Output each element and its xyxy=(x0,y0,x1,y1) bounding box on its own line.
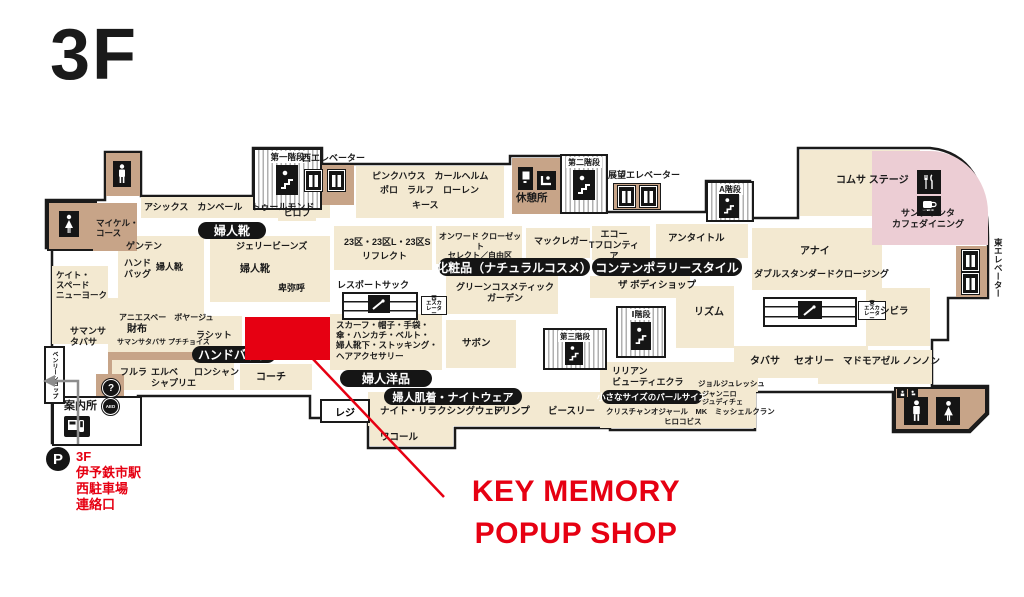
label-sybilla: シビラ xyxy=(880,306,909,317)
label-comme-ca-stage: コムサ ステージ xyxy=(836,175,909,187)
label-green-cosmetic: グリーンコスメティック ガーデン xyxy=(450,282,560,304)
label-anayi: アナイ xyxy=(800,246,830,258)
vending-machine-icon xyxy=(518,167,533,190)
baby-care-icon xyxy=(897,388,907,398)
block-anayi xyxy=(752,228,882,290)
west-escalator-sign: 西 エスカレーター xyxy=(425,295,443,316)
label-mcgregor: マックレガー xyxy=(534,236,588,247)
label-west-elevator: 西エレベーター xyxy=(302,153,365,164)
label-gianni: ジャンニロ ジュディチェ xyxy=(702,391,743,408)
staircase-2-box: 第二階段 xyxy=(560,154,608,214)
elevator-icon xyxy=(305,170,322,191)
label-coach: コーチ xyxy=(256,372,286,384)
east-escalator-sign: 東 エスカレーター xyxy=(862,300,882,321)
label-lilian: リリアン ビューティエクラ xyxy=(612,366,683,388)
staircase-3-label: 第三階段 xyxy=(558,331,592,342)
label-georges-rech: ジョルジュレッシュ xyxy=(698,379,765,388)
public-phone-icon xyxy=(64,416,90,437)
label-mademoiselle: マドモアゼル ノンノン xyxy=(843,356,940,367)
label-michael-kors: マイケル・ コース xyxy=(96,218,139,238)
label-women-shoes-small: 婦人靴 xyxy=(156,262,183,273)
label-observation-elevator: 展望エレベーター xyxy=(608,170,680,181)
mens-restroom-icon xyxy=(113,161,131,187)
label-lesportsac: レスポートサック xyxy=(337,280,409,291)
label-kate-spade: ケイト・ スペード ニューヨーク xyxy=(56,270,107,301)
label-tabatha: タバサ xyxy=(750,356,780,368)
label-ecco: エコー Tフロンティア xyxy=(586,229,642,261)
badge-women-apparel: 婦人洋品 xyxy=(340,370,432,387)
annotation-line2: POPUP SHOP xyxy=(436,516,716,552)
accessible-restroom-icon xyxy=(908,388,918,398)
label-body-shop: ザ ボディショップ xyxy=(618,280,696,291)
block-23ku xyxy=(334,226,432,270)
label-triumph: トリンプ xyxy=(492,406,530,417)
label-rest-area: 休憩所 xyxy=(516,192,548,205)
label-theory: セオリー xyxy=(794,356,834,368)
label-himiko: 卑弥呼 xyxy=(278,283,305,294)
label-women-shoes-center: 婦人靴 xyxy=(240,264,270,276)
label-double-standard: ダブルスタンダードクロージング xyxy=(754,269,889,280)
staircase-3-box: 第三階段 xyxy=(543,328,607,370)
west-escalator-strip xyxy=(342,292,418,320)
label-keith: キース xyxy=(412,200,439,211)
parking-note-line1: 3F xyxy=(76,449,91,465)
label-pink-house: ピンクハウス カールヘルム xyxy=(372,171,488,182)
label-untitled: アンタイトル xyxy=(668,233,725,244)
label-longchamp: ロンシャン xyxy=(194,367,239,378)
label-christian-aujard: クリスチャンオジャール MK ミッシェルクラン xyxy=(606,407,775,416)
label-furla: フルラ xyxy=(120,367,147,378)
label-information: 案内所 xyxy=(64,400,97,413)
label-sabon: サボン xyxy=(462,338,491,349)
label-jelly-beans: ジェリービーンズ xyxy=(236,241,307,252)
label-genten: ゲンテン xyxy=(126,241,162,252)
badge-lingerie: 婦人肌着・ナイトウェア xyxy=(384,388,522,405)
elevator-icon xyxy=(962,250,979,271)
label-23ku: 23区・23区L・23区S xyxy=(344,237,431,248)
restaurant-icon xyxy=(917,170,941,194)
elevator-icon xyxy=(962,273,979,294)
elevator-icon xyxy=(618,186,635,207)
badge-pearl-size: 小さなサイズのパールサイズ xyxy=(602,390,702,404)
elevator-icon xyxy=(328,170,345,191)
womens-restroom-icon xyxy=(59,211,79,237)
label-wallets: 財布 xyxy=(127,324,147,336)
west-escalator-signbox: 西 エスカレーター xyxy=(421,296,447,315)
parking-icon: P xyxy=(46,447,70,471)
benly-shop-box: ベンリーショップ xyxy=(44,346,65,404)
label-reflect: リフレクト xyxy=(362,251,407,262)
label-rhythm: リズム xyxy=(694,307,724,319)
label-handbag-small: ハンド バッグ xyxy=(124,258,151,280)
page-title: 3F xyxy=(50,12,138,98)
label-b-three: ビースリー xyxy=(548,406,595,417)
label-agnes-voyage: アニエスベー ボヤージュ xyxy=(119,313,214,323)
label-accessories: スカーフ・帽子・手袋・ 傘・ハンカチ・ベルト・ 婦人靴下・ストッキング・ ヘアア… xyxy=(336,320,438,361)
label-santa-cafe: サンタサンタ カフェダイニング xyxy=(872,208,984,230)
staircase-i-label: Ⅰ階段 xyxy=(630,309,653,320)
stairs-icon xyxy=(573,170,595,200)
label-herve-chapelier: エルベ シャプリエ xyxy=(151,367,196,389)
label-hiroko-bis: ヒロコビス xyxy=(664,417,702,426)
annotation-line1: KEY MEMORY xyxy=(436,474,716,510)
parking-note-line3: 西駐車場 xyxy=(76,481,128,497)
label-samantha: サマンサ タバサ xyxy=(70,326,106,348)
east-escalator-strip xyxy=(763,297,857,327)
information-icon: ? xyxy=(102,379,120,397)
label-wacoal: ワコール xyxy=(380,432,418,443)
stairs-icon xyxy=(565,342,583,365)
mens-restroom-icon xyxy=(904,397,928,425)
staircase-i-box: Ⅰ階段 xyxy=(616,306,666,358)
aed-icon: AED xyxy=(102,398,119,415)
womens-restroom-icon xyxy=(936,397,960,425)
stairs-icon xyxy=(719,194,739,218)
rest-seat-icon xyxy=(537,171,556,190)
register-box: レジ xyxy=(320,399,370,423)
label-russet: ラシット xyxy=(196,330,232,341)
stairs-icon xyxy=(276,165,298,195)
floor-map-page: 3F 第一階段 第二階段 xyxy=(0,0,1024,597)
staircase-1-label: 第一階段 xyxy=(268,151,306,163)
stairs-icon xyxy=(631,322,651,350)
label-polo: ポロ ラルフ ローレン xyxy=(380,185,479,196)
label-night-relaxing: ナイト・リラクシングウェア xyxy=(380,406,504,417)
label-hirofu: ヒロフ xyxy=(280,208,314,219)
label-onward: オンワード クローゼット セレクト／自由区 xyxy=(438,232,522,261)
label-east-elevator: 東エレベーター xyxy=(993,238,1003,328)
benly-shop-label: ベンリーショップ xyxy=(50,351,59,399)
badge-women-shoes: 婦人靴 xyxy=(198,222,266,239)
popup-shop-highlight xyxy=(245,317,330,360)
staircase-2-label: 第二階段 xyxy=(566,157,602,168)
parking-note-line4: 連絡口 xyxy=(76,497,115,513)
elevator-icon xyxy=(640,186,657,207)
escalator-icon xyxy=(798,301,822,319)
register-label: レジ xyxy=(335,404,355,419)
staircase-a-box: A階段 xyxy=(706,181,754,222)
parking-note-line2: 伊予鉄市駅 xyxy=(76,465,141,481)
escalator-icon xyxy=(368,295,390,313)
